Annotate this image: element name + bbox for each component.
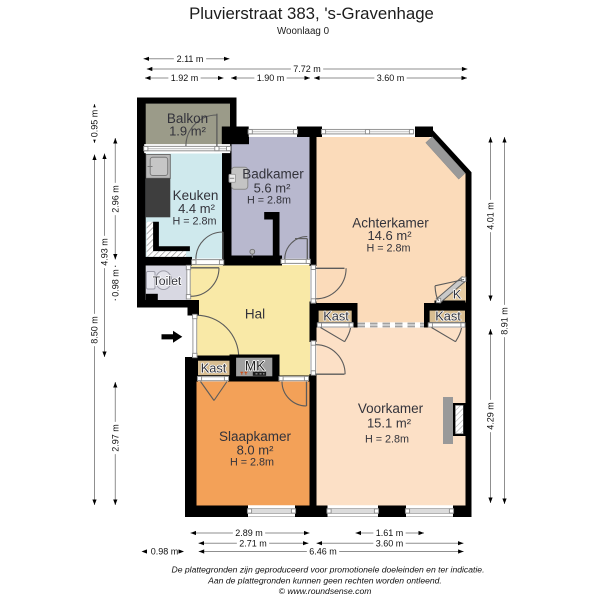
svg-text:4.4 m²: 4.4 m² — [178, 201, 216, 216]
svg-text:0.95 m: 0.95 m — [90, 110, 100, 138]
svg-text:1.61 m: 1.61 m — [376, 528, 404, 538]
svg-text:8.50 m: 8.50 m — [90, 316, 100, 344]
svg-text:Woonlaag 0: Woonlaag 0 — [277, 26, 330, 37]
svg-text:2.11 m: 2.11 m — [177, 54, 204, 64]
svg-text:De plattegronden zijn geproduc: De plattegronden zijn geproduceerd voor … — [172, 565, 485, 575]
svg-text:K: K — [453, 288, 462, 302]
svg-text:1.92 m: 1.92 m — [171, 73, 199, 83]
svg-text:H = 2.8m: H = 2.8m — [365, 434, 409, 446]
svg-text:1.90 m: 1.90 m — [257, 73, 285, 83]
svg-text:Pluvierstraat 383, 's-Gravenha: Pluvierstraat 383, 's-Gravenhage — [189, 4, 434, 23]
svg-text:4.01 m: 4.01 m — [486, 202, 496, 230]
svg-text:H = 2.8m: H = 2.8m — [230, 457, 274, 469]
svg-text:14.6 m²: 14.6 m² — [367, 228, 412, 243]
svg-text:4.29 m: 4.29 m — [486, 402, 496, 430]
svg-text:H = 2.8m: H = 2.8m — [247, 195, 291, 207]
svg-text:Toilet: Toilet — [153, 274, 182, 288]
svg-text:2.97 m: 2.97 m — [111, 424, 121, 452]
svg-text:2.89 m: 2.89 m — [235, 528, 263, 538]
svg-text:© www.roundsense.com: © www.roundsense.com — [279, 586, 372, 596]
svg-text:5.6 m²: 5.6 m² — [254, 181, 292, 196]
svg-text:0.98 m: 0.98 m — [111, 269, 121, 297]
svg-text:1.9 m²: 1.9 m² — [169, 124, 207, 139]
svg-text:2.71 m: 2.71 m — [239, 538, 267, 548]
svg-text:Badkamer: Badkamer — [242, 167, 304, 182]
svg-text:3.60 m: 3.60 m — [377, 73, 405, 83]
svg-text:15.1 m²: 15.1 m² — [367, 416, 412, 431]
svg-text:Kast: Kast — [323, 309, 349, 324]
svg-text:0.98 m: 0.98 m — [151, 547, 179, 557]
svg-text:3.60 m: 3.60 m — [376, 538, 404, 548]
svg-text:Kast: Kast — [435, 309, 461, 324]
svg-text:2.96 m: 2.96 m — [111, 185, 121, 213]
svg-text:8.0 m²: 8.0 m² — [237, 443, 275, 458]
svg-text:6.46 m: 6.46 m — [309, 547, 337, 557]
svg-text:Kast: Kast — [201, 361, 227, 376]
svg-text:8.91 m: 8.91 m — [500, 307, 510, 335]
svg-text:4.93 m: 4.93 m — [100, 238, 110, 266]
svg-text:Aan de plattegronden kunnen ge: Aan de plattegronden kunnen geen rechten… — [207, 576, 442, 586]
svg-text:7.72 m: 7.72 m — [293, 64, 321, 74]
svg-text:H = 2.8m: H = 2.8m — [172, 216, 216, 228]
svg-text:H = 2.8m: H = 2.8m — [366, 243, 410, 255]
svg-text:Voorkamer: Voorkamer — [358, 401, 424, 416]
svg-text:Hal: Hal — [245, 307, 265, 322]
svg-text:MK: MK — [245, 359, 265, 374]
